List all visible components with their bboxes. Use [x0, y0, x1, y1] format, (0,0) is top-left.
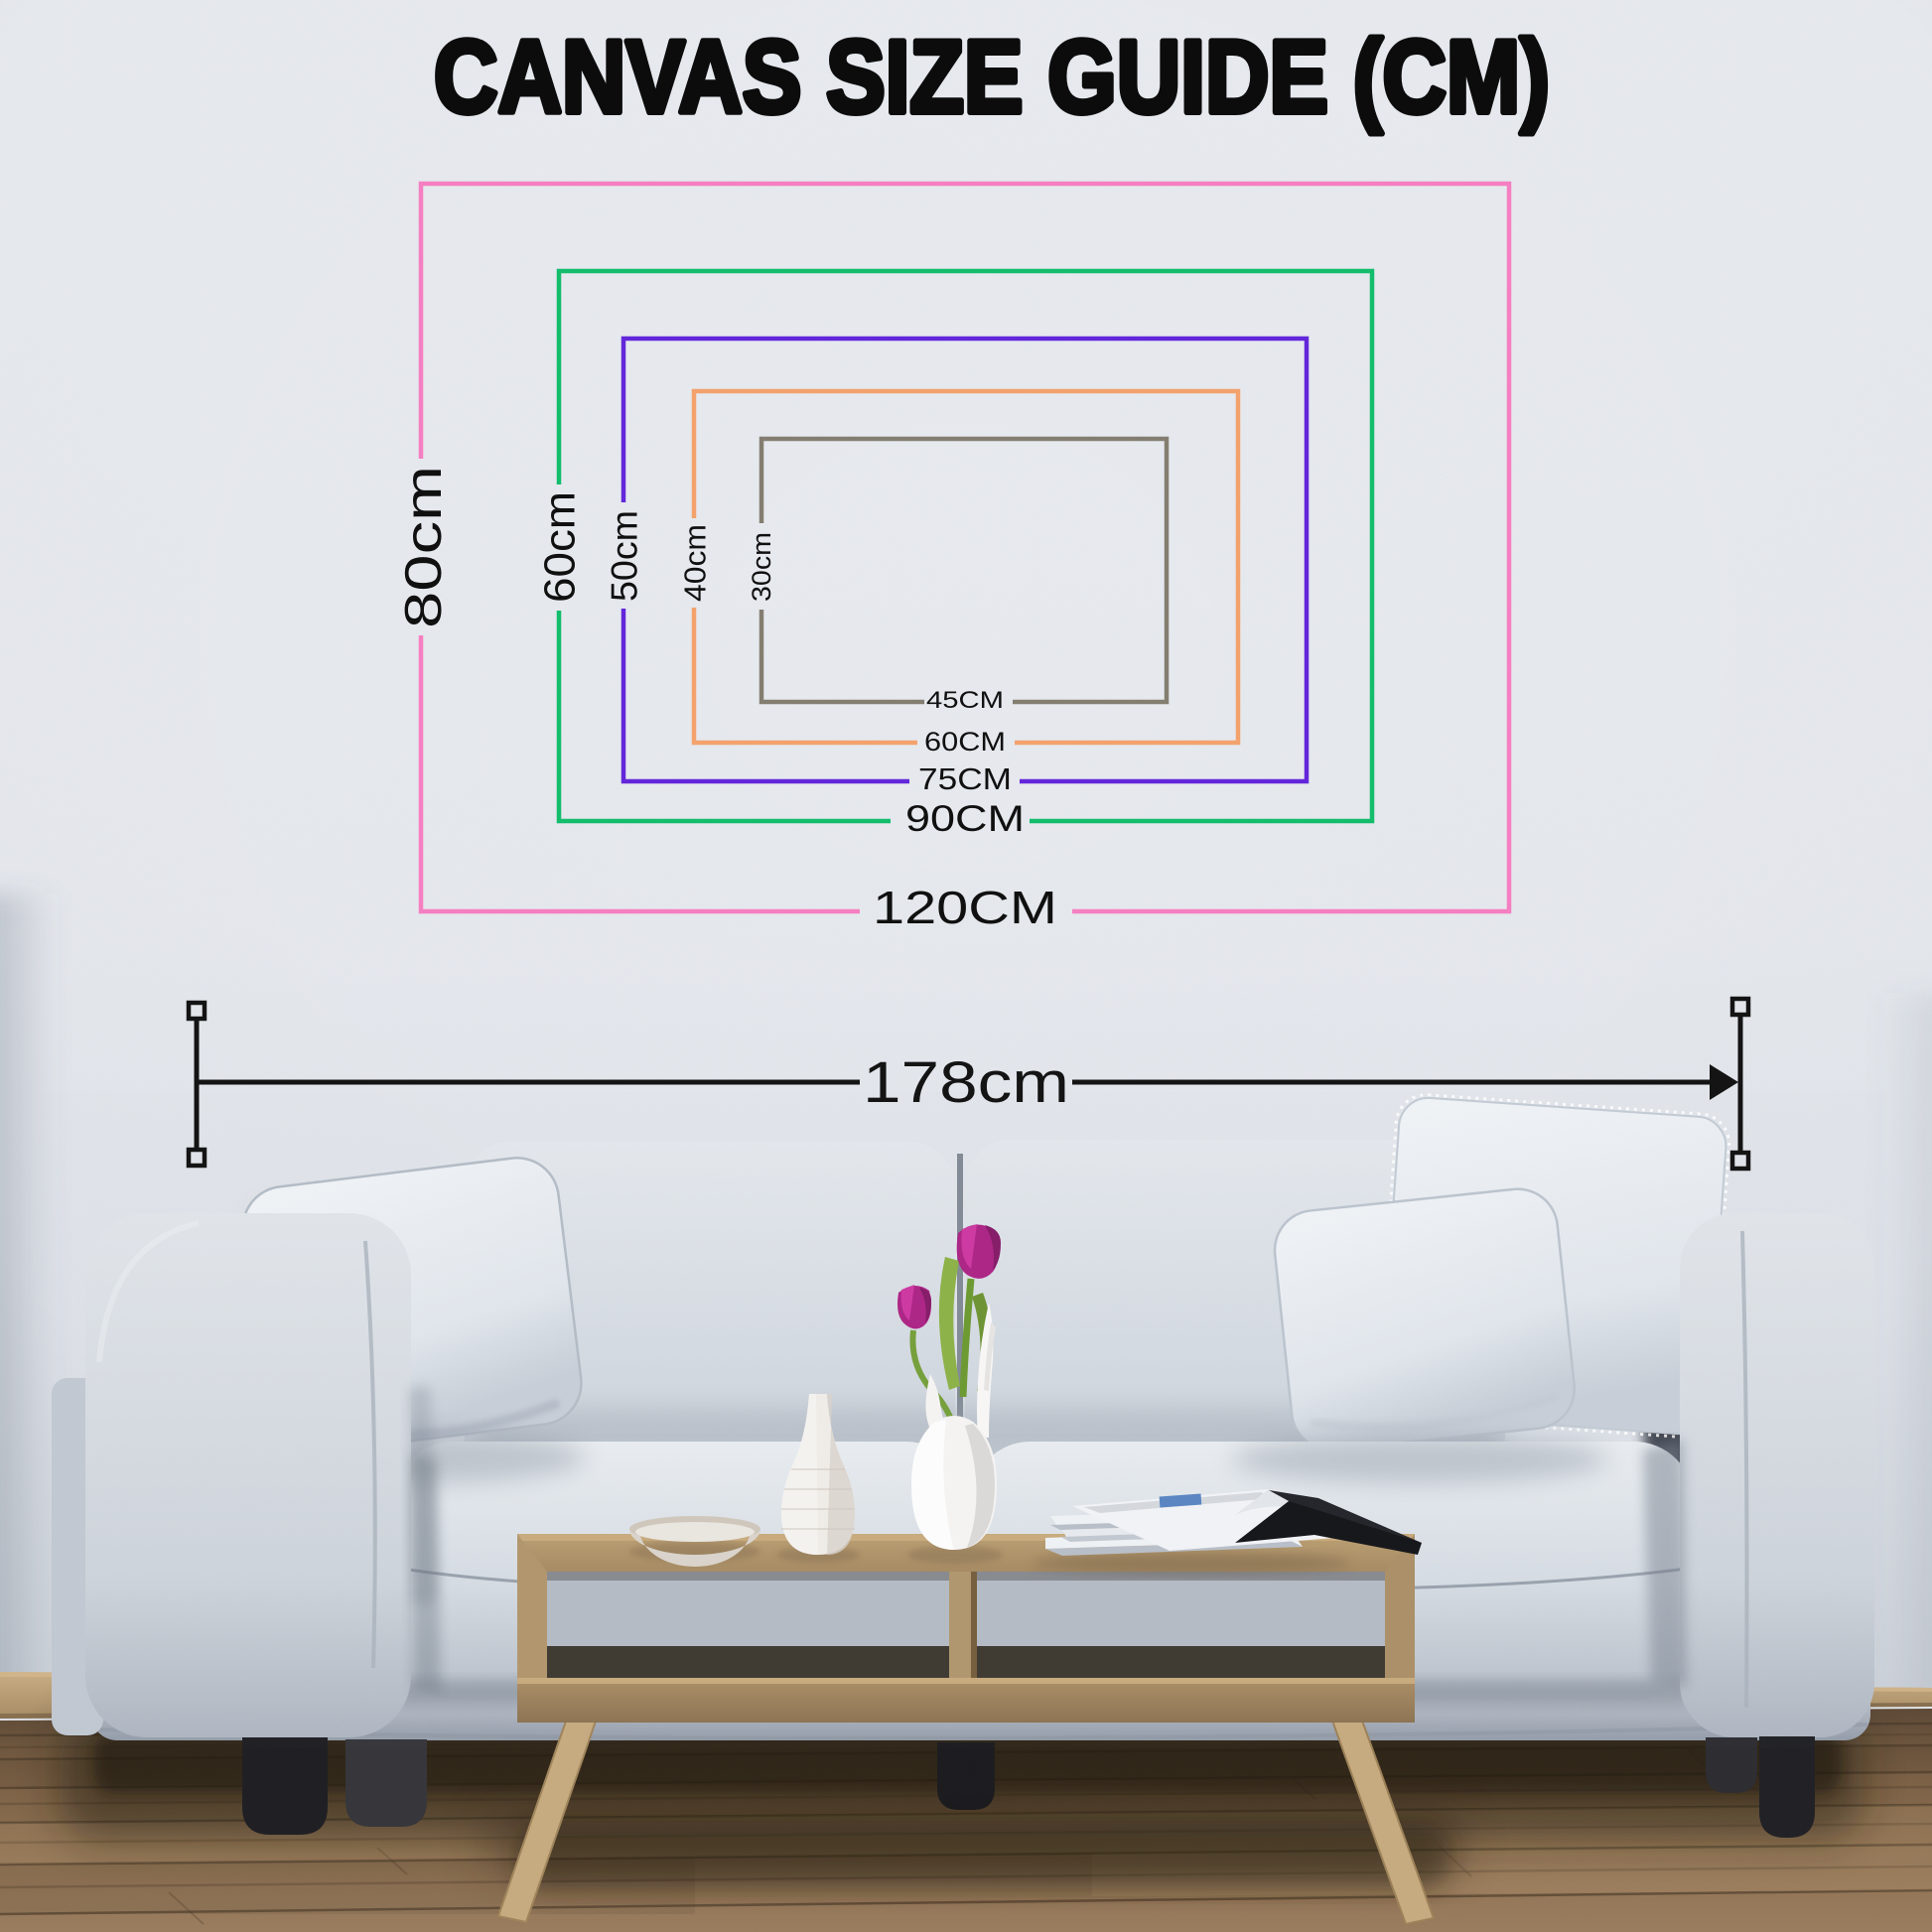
svg-text:120CM: 120CM: [873, 882, 1057, 933]
svg-text:60cm: 60cm: [536, 491, 585, 603]
svg-text:45CM: 45CM: [926, 687, 1004, 714]
svg-text:CANVAS SIZE GUIDE (CM): CANVAS SIZE GUIDE (CM): [434, 20, 1550, 135]
svg-text:80cm: 80cm: [395, 466, 453, 628]
svg-text:30cm: 30cm: [747, 532, 776, 602]
svg-text:75CM: 75CM: [918, 761, 1012, 796]
svg-text:40cm: 40cm: [678, 524, 713, 602]
svg-text:50cm: 50cm: [605, 510, 645, 602]
svg-text:178cm: 178cm: [863, 1050, 1069, 1115]
svg-text:60CM: 60CM: [924, 727, 1006, 757]
svg-text:90CM: 90CM: [905, 798, 1025, 839]
